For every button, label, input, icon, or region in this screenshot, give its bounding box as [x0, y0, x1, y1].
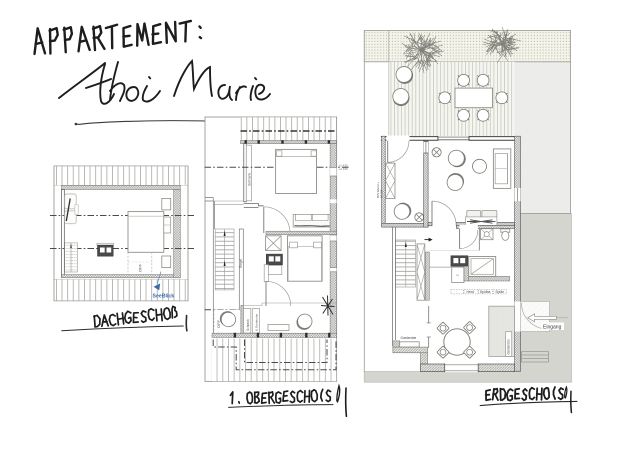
svg-text:+2.435: +2.435	[339, 167, 349, 171]
svg-text:Garderobe: Garderobe	[401, 336, 417, 340]
svg-text:Spülba: Spülba	[480, 290, 491, 294]
svg-text:OFF: OFF	[216, 319, 221, 328]
svg-text:Eingang: Eingang	[543, 325, 562, 331]
svg-text:& Garderobe: & Garderobe	[255, 313, 259, 331]
svg-text:Herd: Herd	[467, 290, 474, 294]
svg-text:Garderobe: Garderobe	[507, 339, 511, 354]
svg-text:Spüle: Spüle	[495, 290, 504, 294]
svg-text:SeeBlick: SeeBlick	[153, 294, 175, 300]
svg-text:Schrank: Schrank	[247, 173, 251, 186]
svg-text:50 DB: 50 DB	[380, 190, 384, 198]
svg-text:OFF: OFF	[138, 263, 143, 272]
svg-text:Schrank: Schrank	[246, 319, 250, 331]
svg-text:Riegel: Riegel	[239, 259, 243, 268]
